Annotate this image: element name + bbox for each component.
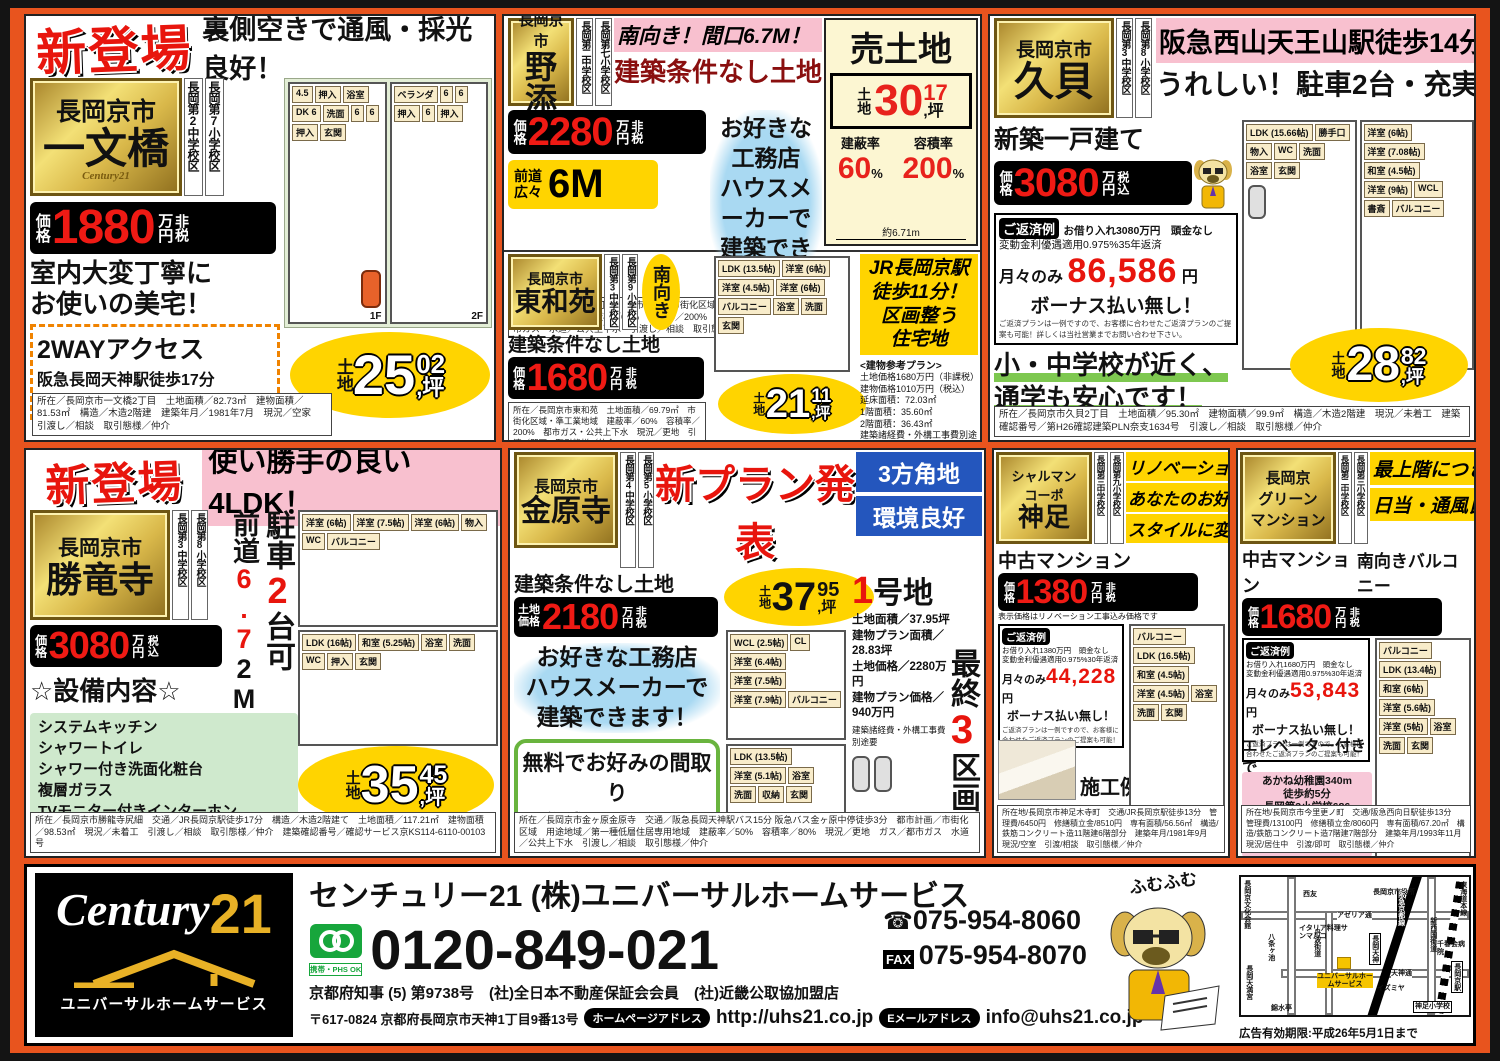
price-tax: 非税	[1103, 582, 1114, 602]
list-item: 和室 (6帖)	[1379, 680, 1428, 697]
far-value: 200	[903, 152, 953, 185]
renovation-headline: リノベーションで あなたのお好み スタイルに変身！	[1126, 452, 1230, 544]
list-item: バルコニー	[1133, 628, 1186, 645]
list-item: 洋室 (7.9帖)	[730, 691, 786, 708]
list-item: 土地面積／37.95坪	[852, 613, 952, 629]
road-label: 前道	[514, 168, 542, 184]
list-item: CL	[790, 634, 810, 651]
equipment-list: システムキッチンシャワートイレシャワー付き洗面化粧台複層ガラスTVモニター付きイ…	[30, 713, 298, 826]
map-label: 長岡天神	[1369, 933, 1381, 965]
school-district: 長岡第三中学校区	[1094, 452, 1108, 544]
monthly-unit: 円	[1246, 707, 1257, 719]
price-value: 3080	[49, 627, 130, 665]
floorplan: LDK (13.5帖)洋室 (6帖)洋室 (4.5帖)洋室 (6帖)バルコニー浴…	[714, 256, 850, 372]
property-type: 中古マンション	[994, 546, 1228, 573]
land-area-box: 土地 30 17,坪	[830, 73, 972, 129]
list-item: 建築諸経費・外構工事費別途要	[860, 430, 978, 442]
list-item: 土地価格／2280万円	[852, 660, 952, 691]
monthly-unit: 円	[1182, 269, 1198, 286]
top-floor-headline: 最上階につき 日当・通風良好	[1370, 452, 1476, 544]
price-unit: 万円	[157, 213, 173, 243]
school-district: 長岡第8小学校区	[1135, 18, 1152, 118]
map-label: 天神通	[1391, 970, 1412, 978]
price-value: 1880	[52, 204, 155, 252]
repayment-example: ご返済例 お借り入れ1380万円 頭金なし 変動金利優遇適用0.975%30年返…	[998, 624, 1124, 748]
estate-name-plate: 長岡京市 野添	[508, 18, 574, 106]
list-item: 洋室 (5.6帖)	[1379, 699, 1435, 716]
floorplan-rooms: 4.5押入浴室DK 6洗面66押入玄関	[290, 84, 385, 270]
floorplan-2f: ベランダ66押入6押入 2F	[390, 82, 489, 324]
property-details: 所在／長岡京市久貝2丁目 土地面積／95.30㎡ 建物面積／99.9㎡ 構造／木…	[994, 406, 1470, 437]
list-item: 洋室 (9帖)	[1364, 181, 1413, 198]
list-item: 洋室 (4.5帖)	[718, 279, 774, 296]
road-label: 広々	[514, 184, 542, 200]
price-unit: 万円	[615, 119, 629, 145]
price-banner: 価格 1380 万円 非税	[998, 573, 1198, 611]
list-item: システムキッチン	[38, 717, 290, 738]
sales-copy-line: 室内大変丁寧に	[30, 258, 280, 289]
property-details: 所在地/長岡京市今里更ノ町 交通/阪急西向日駅徒歩13分 管理費/13100円 …	[1241, 805, 1471, 853]
price-tax: 税込	[1116, 171, 1129, 195]
price-unit: 万円	[1333, 606, 1345, 628]
floorplan-2f: WCL (2.5帖)CL洋室 (6.4帖)洋室 (7.5帖)洋室 (7.9帖)バ…	[726, 630, 846, 740]
freedial-badge: 携帯・PHS OK	[309, 924, 362, 976]
repayment-line: 変動金利優遇適用0.975%30年返済	[1002, 655, 1120, 664]
estate-name-line: マンション	[1243, 509, 1333, 530]
monthly-label: 月々のみ	[999, 269, 1063, 286]
list-item: LDK (13.5帖)	[730, 748, 792, 765]
list-item: 玄関	[320, 124, 346, 141]
renovation-photo	[998, 740, 1076, 800]
headline-station: 阪急西山天王山駅徒歩14分！	[1156, 18, 1476, 63]
repayment-note: ご返済プランは一例ですので、お客様に合わせたご返済プランのご提案も可能！詳しくは…	[999, 318, 1233, 340]
list-item: WC	[302, 653, 325, 670]
list-item: 建物価格1010万円（税込）	[860, 384, 978, 396]
list-item: 洋室 (5帖)	[1379, 718, 1428, 735]
floor-label: 1F	[290, 311, 385, 322]
coverage-value: 60	[838, 152, 871, 185]
list-item: 建物プラン面積／28.83坪	[852, 629, 952, 660]
last-lots-vertical: 最終3区画	[942, 648, 982, 812]
estate-name-plate: 長岡京市 金原寺	[514, 452, 618, 548]
build-pitch: お好きな工務店 ハウスメーカーで 建築できます！	[514, 643, 720, 733]
map-label: 長岡京文化会館	[1243, 880, 1251, 929]
far-unit: %	[953, 166, 965, 181]
headline-parking: うれしい！駐車2台・充実収納	[1156, 63, 1476, 103]
land-unit: ,坪	[416, 377, 444, 399]
freephone-number: 0120-849-021	[370, 917, 719, 982]
city-label: 長岡京市	[33, 92, 179, 128]
list-item: 収納	[758, 786, 784, 803]
estate-name: 金原寺	[517, 497, 615, 527]
floorplan-rooms: LDK (13.5帖)洋室 (6帖)洋室 (4.5帖)洋室 (6帖)バルコニー浴…	[716, 258, 848, 336]
estate-name-plate: 長岡京市 東和苑	[508, 254, 602, 330]
estate-name: 東和苑	[511, 289, 599, 316]
subtitle: 建築条件なし土地	[508, 330, 708, 357]
school-copy-line: 小・中学校が近く、	[994, 349, 1228, 382]
monthly-amount: 86,586	[1067, 252, 1177, 290]
email-pill: Eメールアドレス	[879, 1008, 979, 1028]
price-label: 価格	[512, 119, 526, 145]
land-area-badge: 土地 21 11,坪	[718, 374, 866, 434]
ad-expiry: 広告有効期限:平成26年5月1日まで	[1239, 1025, 1418, 1041]
list-item: 勝手口	[1315, 124, 1350, 141]
price-label: 価格	[34, 213, 50, 243]
station-line: 徒歩11分！	[863, 281, 975, 305]
list-item: 洋室 (6.4帖)	[730, 653, 786, 670]
access-line: 阪急長岡天神駅徒歩17分	[37, 366, 273, 390]
list-item: 玄関	[718, 317, 744, 334]
floorplan-rooms: LDK (13.5帖)洋室 (5.1帖)浴室洗面収納玄関	[728, 746, 844, 805]
land-unit: ,坪	[923, 104, 943, 120]
list-item: 浴室	[788, 767, 814, 784]
pitch-line: 建築できます！	[514, 703, 720, 733]
facing-label: 南向き	[648, 265, 674, 319]
list-item: 玄関	[1407, 737, 1433, 754]
price-value: 3080	[1014, 163, 1099, 203]
floorplan-rooms: LDK (16帖)和室 (5.25帖)浴室洗面WC押入玄関	[300, 632, 496, 672]
list-item: あかね幼稚園340m	[1245, 775, 1369, 788]
lot-note: 建築諸経費・外構工事費別途要	[852, 724, 952, 748]
road-width-vertical: 前道6.72M！	[230, 510, 257, 741]
listing-shoryuji: 新登場 使い勝手の良い4LDK！ 長岡京市 勝竜寺 長岡第3中学校区 長岡第8小…	[24, 448, 502, 858]
repayment-label: ご返済例	[1002, 628, 1050, 645]
list-item: 洋室 (7.5帖)	[353, 514, 409, 531]
repayment-line: お借り入れ3080万円 頭金なし	[1063, 225, 1212, 237]
list-item: 4.5	[292, 86, 313, 103]
list-item: 洗面	[323, 105, 349, 122]
list-item: 洋室 (7.08帖)	[1364, 143, 1425, 160]
price-value: 1680	[1260, 600, 1332, 634]
list-item: 洋室 (6帖)	[302, 514, 351, 531]
land-unit: ,坪	[1401, 368, 1424, 386]
listing-charmant-kotari: シャルマン コーポ 神足 長岡第三中学校区 長岡第九小学校区 リノベーションで …	[992, 448, 1230, 858]
list-item: 1階面積：35.60㎡	[860, 407, 978, 419]
sales-copy-line: お使いの美宅！	[30, 289, 280, 320]
school-district: 長岡第2中学校区	[184, 78, 203, 196]
list-item: 浴室	[1246, 162, 1272, 179]
price-value: 2280	[528, 112, 613, 152]
list-item: 物入	[461, 514, 487, 531]
price-banner: 価格 3080 万円 税込	[30, 625, 222, 667]
environment-badge: 環境良好	[856, 496, 982, 536]
phone-icon: ☎	[883, 908, 913, 935]
floorplan-rooms: バルコニーLDK (13.4帖)和室 (6帖)洋室 (5.6帖)洋室 (5帖)浴…	[1377, 640, 1469, 756]
list-item: DK 6	[292, 105, 321, 122]
price-unit: 万円	[131, 634, 144, 658]
century21-logo: Century21 ユニバーサルホームサービス	[35, 873, 293, 1037]
lot-details: 土地面積／37.95坪建物プラン面積／28.83坪土地価格／2280万円建物プラ…	[852, 613, 952, 722]
road-width-badge: 前道広々 6M	[508, 160, 658, 209]
list-item: 浴室	[1430, 718, 1456, 735]
address: 〒617-0824 京都府長岡京市天神1丁目9番13号	[309, 1009, 578, 1028]
land-tsubo-frac: 82	[1401, 345, 1427, 368]
school-district: 長岡第三小学校区	[1354, 452, 1368, 544]
station-access-badge: JR長岡京駅 徒歩11分！ 区画整う 住宅地	[860, 254, 978, 355]
land-label: 土地	[759, 585, 771, 609]
price-note: 表示価格はリノベーション工事込み価格です	[994, 611, 1228, 622]
facing-badge: 南向き	[642, 254, 680, 330]
land-tsubo-frac: 95	[817, 580, 839, 600]
no-bonus-note: ボーナス払い無し！	[1002, 707, 1120, 724]
estate-name-line: 神足	[999, 504, 1089, 530]
logo-21-text: 21	[210, 882, 272, 945]
flyer-frame: 新登場 裏側空きで通風・採光良好！ 長岡京市 一文橋 Century21 長岡第…	[10, 8, 1490, 1053]
land-tsubo: 37	[772, 577, 817, 617]
map-label: 千春会病院	[1437, 941, 1471, 956]
price-label: 価格	[512, 366, 525, 390]
list-item: 洋室 (5.1帖)	[730, 767, 786, 784]
school-district: 長岡第九小学校区	[1110, 452, 1124, 544]
price-banner: 価格 3080 万円 税込	[994, 161, 1192, 205]
footer: Century21 ユニバーサルホームサービス センチュリー21 (株)ユニバー…	[24, 864, 1476, 1046]
map-label: 新西国街道	[1429, 917, 1437, 952]
repayment-label: ご返済例	[1246, 642, 1294, 659]
car-icon	[874, 756, 892, 792]
dog-mascot-icon	[1192, 156, 1234, 210]
list-item: 洋室 (6帖)	[1364, 124, 1413, 141]
price-banner: 価格 2280 万円 非税	[508, 110, 706, 154]
list-item: ベランダ	[394, 86, 438, 103]
list-item: LDK (13.5帖)	[718, 260, 780, 277]
list-item: 6	[440, 86, 453, 103]
company-name: センチュリー21 (株)ユニバーサルホームサービス	[309, 871, 879, 915]
school-district: 長岡第3中学校区	[604, 254, 620, 330]
list-item: 洋室 (7.5帖)	[730, 672, 786, 689]
city-label: 長岡京市	[33, 532, 167, 562]
estate-name-line: シャルマン	[999, 466, 1089, 485]
listing-kinbaraji: 長岡京市 金原寺 長岡第4中学校区 長岡第5小学校区 新プラン発表 3方角地 環…	[508, 448, 986, 858]
land-lot-diagram: 売土地 土地 30 17,坪 建蔽率60% 容積率200% 約6.71m	[824, 18, 978, 246]
property-type: 中古マンション	[1242, 546, 1351, 598]
list-item: 洗面	[1133, 704, 1159, 721]
price-label: 価格	[998, 170, 1012, 196]
price-tax: 税込	[146, 635, 158, 657]
estate-name-plate: 長岡京市 勝竜寺	[30, 510, 170, 620]
logo-brand-text: Century	[56, 884, 209, 935]
price-value: 1380	[1016, 575, 1088, 609]
no-bonus-note: ボーナス払い無し！	[999, 291, 1233, 318]
estate-name-line: 長岡京	[1243, 467, 1333, 488]
map-label: 長岡京市役所	[1373, 889, 1415, 897]
list-item: 洗面	[449, 634, 475, 651]
repayment-example: ご返済例 お借り入れ3080万円 頭金なし 変動金利優遇適用0.975%35年返…	[994, 213, 1238, 345]
new-plan-headline: 新プラン発表	[654, 452, 856, 568]
flyer: 新登場 裏側空きで通風・採光良好！ 長岡京市 一文橋 Century21 長岡第…	[0, 0, 1500, 1061]
map-label: 阪急京都線	[1397, 891, 1405, 926]
fax-label: FAX	[883, 950, 914, 969]
station-line: JR長岡京駅	[863, 257, 975, 281]
access-title: 2WAYアクセス	[37, 330, 273, 366]
fax-number: 075-954-8070	[919, 940, 1087, 970]
brand-label: Century21	[33, 170, 179, 182]
estate-name: 一文橋	[33, 128, 179, 170]
list-item: バルコニー	[1392, 200, 1445, 217]
headline-no-conditions: 建築条件なし土地	[614, 52, 822, 89]
corner-lot-badge: 3方角地	[856, 452, 982, 492]
price-unit: 万円	[1101, 170, 1115, 196]
price-banner: 価格 1880 万円 非税	[30, 202, 276, 254]
map-road	[1287, 877, 1296, 1015]
land-unit: ,坪	[420, 788, 446, 808]
land-tsubo: 21	[766, 384, 811, 424]
land-tsubo: 35	[361, 759, 419, 811]
list-item: 6	[366, 105, 379, 122]
school-district: 長岡第9小学校区	[622, 254, 638, 330]
estate-name-plate: 長岡京市 一文橋 Century21	[30, 78, 182, 196]
property-type: 新築一戸建て	[994, 120, 1238, 156]
for-sale-land-title: 売土地	[828, 22, 974, 71]
mobile-ok-note: 携帯・PHS OK	[309, 963, 362, 976]
land-label: 土地	[753, 392, 765, 416]
property-details: 所在／長岡京市勝龍寺尻細 交通／JR長岡京駅徒歩17分 構造／木造2階建て 土地…	[30, 812, 496, 853]
price-tax: 非税	[634, 606, 646, 628]
price-tax: 非税	[624, 367, 636, 389]
map-label-office: ユニバーサルホームサービス	[1317, 973, 1373, 988]
parking-vertical: 駐車2台可	[259, 510, 295, 741]
list-item: シャワートイレ	[38, 738, 290, 759]
repayment-line: お借り入れ1380万円 頭金なし	[1002, 646, 1120, 655]
listing-kugai: 長岡京市 久貝 長岡第3中学校区 長岡第8小学校区 阪急西山天王山駅徒歩14分！…	[988, 14, 1476, 442]
listing-nozoe-towaen: 長岡京市 野添 長岡第二中学校区 長岡第七小学校区 南向き！間口6.7M！ 建築…	[502, 14, 982, 442]
list-item: WC	[302, 533, 325, 550]
list-item: バルコニー	[1379, 642, 1432, 659]
list-item: 複層ガラス	[38, 780, 290, 801]
vertical-callouts: 前道6.72M！ 駐車2台可	[230, 510, 295, 741]
monthly-amount: 53,843	[1290, 679, 1360, 702]
price-label: 価格	[34, 634, 47, 658]
far-label: 容積率	[903, 133, 965, 152]
equipment-title: ☆設備内容☆	[30, 671, 226, 708]
estate-name: 勝竜寺	[33, 562, 167, 598]
land-tsubo: 28	[1347, 341, 1400, 389]
list-item: シャワー付き洗面化粧台	[38, 759, 290, 780]
freedial-icon	[310, 924, 362, 958]
floorplan-rooms: バルコニーLDK (16.5帖)和室 (4.5帖)洋室 (4.5帖)浴室洗面玄関	[1131, 626, 1223, 723]
price-banner: 価格 1680 万円 非税	[1242, 598, 1442, 636]
building-plan-lines: 土地価格1680万円（非課税）建物価格1010万円（税込）延床面積：72.03㎡…	[860, 372, 978, 442]
list-item: バルコニー	[718, 298, 771, 315]
property-details: 所在地/長岡京市神足木寺町 交通/JR長岡京駅徒歩13分 管理費/6450円 修…	[997, 805, 1225, 853]
city-label: 長岡京市	[997, 35, 1111, 62]
logo-house-roof-icon	[64, 946, 264, 988]
floorplan-rooms: ベランダ66押入6押入	[392, 84, 487, 311]
land-unit: ,坪	[811, 406, 830, 421]
map-label: 東海道本線	[1459, 881, 1467, 916]
map-label: イタリア料理サンマルコ	[1299, 925, 1351, 940]
price-value: 1680	[527, 359, 608, 397]
access-map: 長岡京文化会館 西友 アゼリア通 長岡京市役所 イタリア料理サンマルコ 八条ヶ池…	[1239, 875, 1471, 1017]
price-unit: 万円	[620, 606, 632, 628]
land-tsubo-frac: 11	[811, 387, 831, 406]
estate-name-plate: 長岡京 グリーン マンション	[1240, 452, 1336, 544]
list-item: 和室 (5.25帖)	[358, 634, 419, 651]
estate-name-plate: シャルマン コーポ 神足	[996, 452, 1092, 544]
frontage-note: 約6.71m	[836, 224, 966, 240]
map-label: イズミヤ	[1377, 985, 1405, 993]
phone-fax-block: ☎075-954-8060 FAX 075-954-8070	[883, 905, 1087, 971]
land-label: 土地	[854, 87, 874, 115]
headline-line: 日当・通風良好	[1370, 488, 1476, 521]
listing-green-mansion: 長岡京 グリーン マンション 長岡第二中学校区 長岡第三小学校区 最上階につき …	[1236, 448, 1476, 858]
listing-ichimonbashi: 新登場 裏側空きで通風・採光良好！ 長岡京市 一文橋 Century21 長岡第…	[24, 14, 496, 442]
list-item: WCL	[1414, 181, 1443, 198]
land-area-badge: 土地 28 82,坪	[1290, 328, 1468, 402]
station-line: 区画整う	[863, 305, 975, 329]
headline-line: あなたのお好み	[1126, 483, 1230, 512]
repayment-line: お借り入れ1680万円 頭金なし	[1246, 660, 1366, 669]
repayment-line: 変動金利優遇適用0.975%35年返済	[999, 239, 1233, 252]
list-item: 6	[422, 105, 435, 122]
map-label: アゼリア通	[1337, 912, 1372, 920]
list-item: 洗面	[730, 786, 756, 803]
list-item: 土地価格1680万円（非課税）	[860, 372, 978, 384]
city-label: 長岡京市	[517, 473, 615, 497]
headline: 裏側空きで通風・採光良好！	[202, 14, 494, 86]
list-item: 玄関	[786, 786, 812, 803]
list-item: 洋室 (6帖)	[776, 279, 825, 296]
subtitle: 建築条件なし土地	[514, 568, 720, 597]
list-item: 押入	[327, 653, 353, 670]
school-district: 長岡第5小学校区	[638, 452, 654, 568]
list-item: 6	[351, 105, 364, 122]
road-value: 6M	[548, 162, 604, 207]
new-arrival-badge: 新登場	[25, 14, 204, 86]
pitch-line: ハウスメーカーで	[710, 174, 822, 234]
school-district: 長岡第3中学校区	[172, 510, 189, 620]
pitch-line: お好きな工務店	[710, 114, 822, 174]
repayment-label: ご返済例	[999, 218, 1059, 239]
homepage-url[interactable]: http://uhs21.co.jp	[716, 1007, 873, 1029]
list-item: バルコニー	[327, 533, 380, 550]
list-item: 和室 (4.5帖)	[1133, 666, 1189, 683]
list-item: 押入	[437, 105, 463, 122]
floorplan-1f: LDK (16帖)和室 (5.25帖)浴室洗面WC押入玄関	[298, 630, 498, 747]
list-item: 建物プラン価格／940万円	[852, 691, 952, 722]
land-tsubo: 25	[353, 347, 415, 403]
land-tsubo-frac: 02	[416, 351, 445, 377]
list-item: バルコニー	[788, 691, 841, 708]
dog-mascot-icon	[1103, 894, 1223, 1032]
price-value: 2180	[542, 599, 618, 635]
list-item: LDK (16帖)	[302, 634, 356, 651]
map-label: 錦水亭	[1271, 1005, 1292, 1013]
repayment-line: 変動金利優遇適用0.975%30年返済	[1246, 669, 1366, 678]
list-item: 浴室	[773, 298, 799, 315]
map-label: 長岡京駅	[1451, 961, 1463, 993]
balcony-note: 南向きバルコニー	[1357, 547, 1474, 597]
school-district: 長岡第二中学校区	[1338, 452, 1352, 544]
tel-number: 075-954-8060	[913, 905, 1081, 935]
monthly-unit: 円	[1002, 693, 1013, 705]
list-item: WC	[1274, 143, 1297, 160]
lot-number-title: 1号地	[852, 568, 952, 613]
list-item: 玄関	[1161, 704, 1187, 721]
monthly-label: 月々のみ	[1246, 688, 1290, 700]
price-tax: 非税	[1347, 607, 1358, 627]
floor-label: 2F	[392, 311, 487, 322]
headline-line: 最上階につき	[1370, 452, 1476, 485]
list-item: 洗面	[801, 298, 827, 315]
free-plan-line: 無料でお好みの間取り	[522, 747, 712, 807]
estate-name: 野添	[511, 51, 571, 115]
floorplan-panel: 4.5押入浴室DK 6洗面66押入玄関 1F ベランダ66押入6押入 2F	[284, 78, 492, 328]
monthly-amount: 44,228	[1046, 665, 1116, 688]
list-item: 2階面積：36.43㎡	[860, 419, 978, 431]
coverage-unit: %	[871, 166, 883, 181]
list-item: 洋室 (6帖)	[411, 514, 460, 531]
school-district: 長岡第4中学校区	[620, 452, 636, 568]
